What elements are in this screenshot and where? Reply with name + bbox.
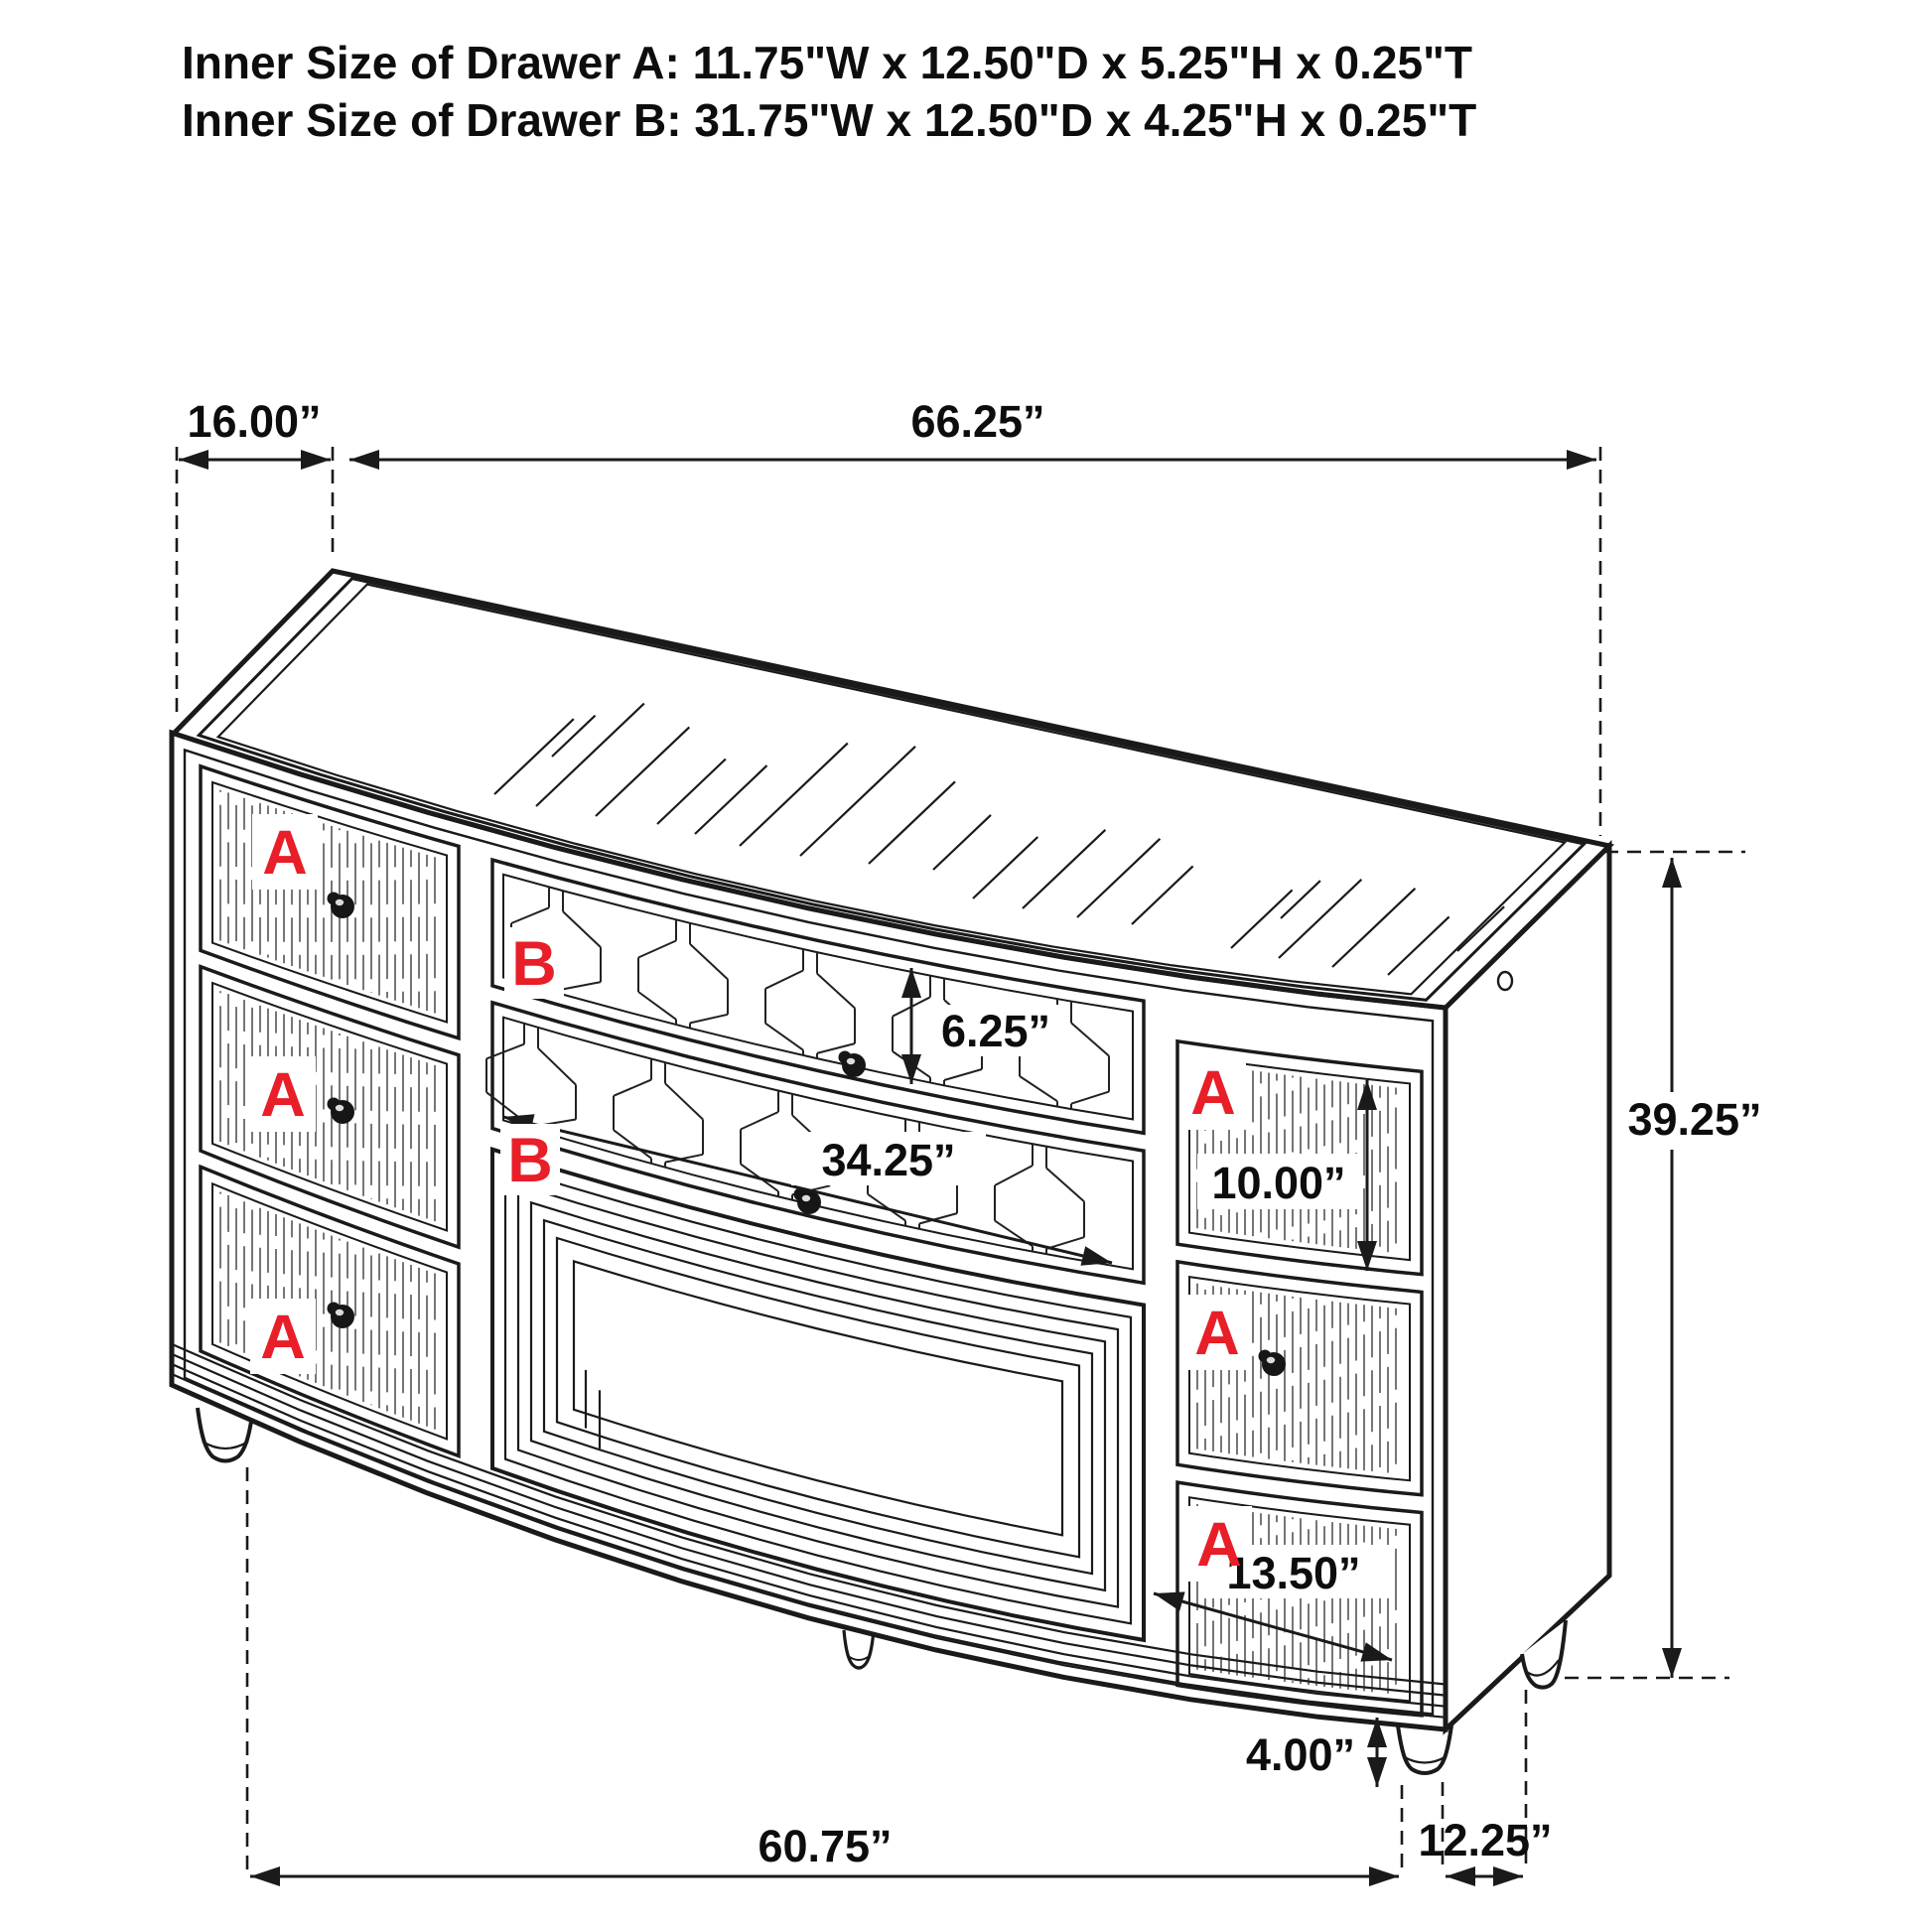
- title-line-1: Inner Size of Drawer A: 11.75"W x 12.50"…: [182, 37, 1472, 88]
- dim-base-depth: 12.25”: [1418, 1815, 1552, 1865]
- dim-overall-height: 39.25”: [1627, 1094, 1761, 1145]
- dim-drawer-b-height: 6.25”: [941, 1006, 1050, 1056]
- diagram-canvas: Inner Size of Drawer A: 11.75"W x 12.50"…: [0, 0, 1932, 1932]
- drawer-label-a-right-3: A: [1196, 1510, 1242, 1580]
- drawer-label-a-left-1: A: [262, 818, 308, 888]
- dresser-dimension-diagram: Inner Size of Drawer A: 11.75"W x 12.50"…: [0, 0, 1932, 1932]
- drawer-label-a-left-3: A: [260, 1303, 306, 1372]
- drawer-label-a-right-2: A: [1194, 1299, 1240, 1368]
- foot-center: [844, 1630, 874, 1668]
- title-line-2: Inner Size of Drawer B: 31.75"W x 12.50"…: [182, 94, 1476, 146]
- dim-right-top-drawer-height: 10.00”: [1211, 1158, 1345, 1208]
- drawer-label-b-2: B: [507, 1126, 553, 1195]
- dim-top-width: 66.25”: [910, 396, 1044, 447]
- dim-top-depth: 16.00”: [187, 396, 321, 447]
- drawer-label-a-left-2: A: [260, 1060, 306, 1130]
- dim-base-width: 60.75”: [758, 1821, 892, 1871]
- dim-leg-height: 4.00”: [1246, 1729, 1355, 1780]
- dim-right-bottom-drawer-width: 13.50”: [1226, 1548, 1360, 1598]
- drawer-label-a-right-1: A: [1190, 1058, 1236, 1128]
- drawer-label-b-1: B: [511, 929, 557, 999]
- dim-drawer-b-width: 34.25”: [821, 1135, 955, 1185]
